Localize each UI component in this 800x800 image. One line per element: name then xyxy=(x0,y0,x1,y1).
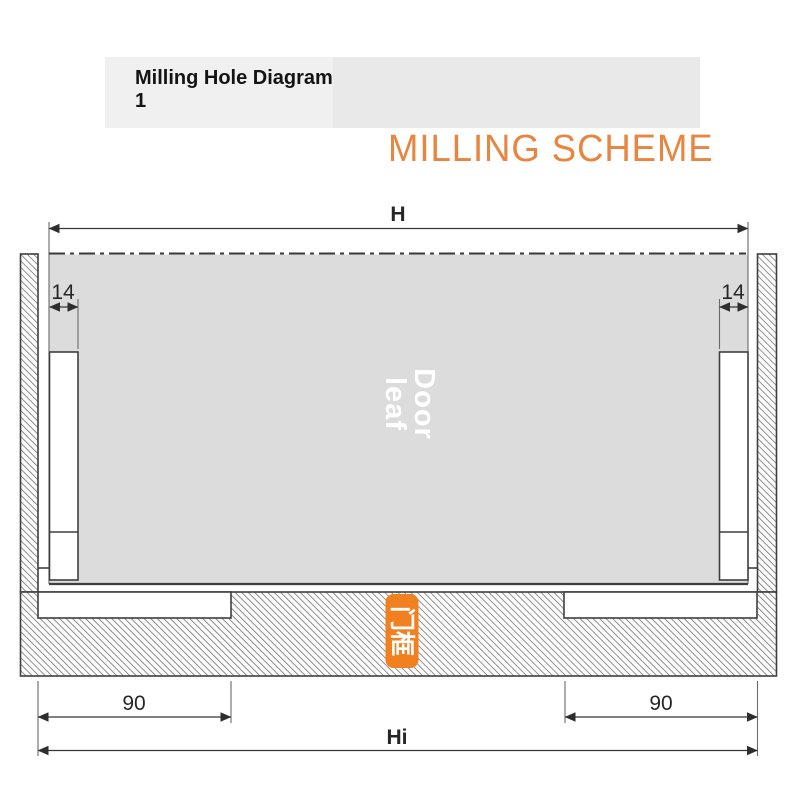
door-frame-left-jamb xyxy=(21,254,39,592)
milling-hole-right xyxy=(720,352,749,580)
dim-14-right-label: 14 xyxy=(721,281,745,304)
dim-h-label: H xyxy=(390,203,405,226)
milling-slot-left xyxy=(38,592,231,618)
door-leaf-label-line2: leaf xyxy=(379,377,411,431)
milling-hole-left xyxy=(50,352,79,580)
dim-90-left-label: 90 xyxy=(122,692,145,715)
screenshot-page: Milling Hole Diagram 1 MILLING SCHEME xyxy=(0,0,800,800)
door-frame-right-jamb xyxy=(758,254,777,592)
dim-hi-label: Hi xyxy=(387,726,408,749)
door-leaf-label-line1: Door xyxy=(408,368,440,440)
milling-slot-right xyxy=(564,592,757,618)
door-frame-badge-label: 门框 xyxy=(388,606,417,656)
dim-14-left-label: 14 xyxy=(51,281,75,304)
dim-90-right-label: 90 xyxy=(649,692,672,715)
milling-diagram: H 14 14 Door leaf 门框 90 90 Hi xyxy=(0,0,800,800)
door-leaf-label: Door leaf xyxy=(379,368,440,440)
